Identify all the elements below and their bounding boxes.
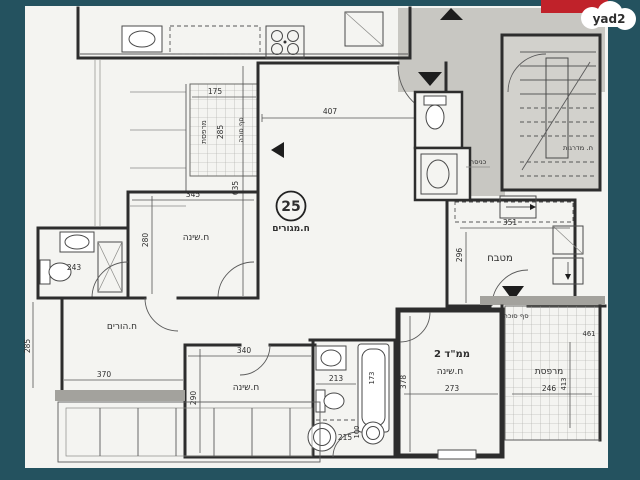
living-label: ח.מגורים	[272, 224, 310, 234]
floorplan-drawing: 175 מרפסת 285 סף סוכה 407 635 25 ח.מגורי…	[0, 0, 640, 480]
kitchen-height: 296	[455, 248, 464, 263]
balcony-bottom-edge-dim: 461	[583, 330, 596, 338]
toilet-icon	[424, 96, 446, 129]
bedroom-2-label: ח.שינה	[233, 383, 260, 393]
sink-icon	[316, 346, 346, 370]
kitchen-width: 351	[503, 218, 518, 227]
balcony-bottom-label: מרפסת	[535, 367, 564, 377]
balcony-bottom-width: 246	[542, 384, 557, 393]
balcony-bottom-height: 413	[560, 378, 568, 391]
bathroom-2-dim-c: 100	[353, 426, 361, 439]
bedroom-2-height: 290	[189, 391, 198, 406]
mamad-label: ממ"ד 2	[434, 349, 470, 360]
bedroom-1-width: 345	[186, 190, 201, 199]
balcony-bottom-sill-label: סף סוכה	[503, 312, 529, 320]
bedroom-1-height: 280	[141, 233, 150, 248]
mamad-width: 273	[445, 384, 460, 393]
yad2-logo-text: yad2	[593, 12, 626, 26]
bathtub-icon	[358, 344, 389, 432]
floorplan-photo-viewer: 175 מרפסת 285 סף סוכה 407 635 25 ח.מגורי…	[0, 0, 640, 480]
parents-width: 370	[97, 370, 112, 379]
bedroom-2-width: 340	[237, 346, 252, 355]
unit-number: 25	[281, 199, 300, 215]
balcony-top-sill-label: סף סוכה	[237, 117, 245, 143]
sink-icon	[60, 232, 94, 252]
bedroom-1-label: ח.שינה	[183, 233, 210, 243]
mamad-sublabel: ח.שינה	[437, 367, 464, 377]
bathroom-2-dim-b: 215	[338, 433, 353, 442]
living-width: 407	[323, 107, 338, 116]
parents-label: ח.הורים	[107, 322, 137, 332]
wall-hatch	[480, 296, 605, 305]
entrance-label: כניסה	[470, 158, 487, 166]
balcony-top-height: 285	[216, 125, 225, 140]
bathroom-2-dim-a: 213	[329, 374, 344, 383]
bathtub-dim: 173	[368, 372, 376, 385]
entry-wc	[415, 92, 470, 200]
balcony-top-width: 175	[208, 87, 223, 96]
stairs-label: ח. מדרגות	[563, 144, 593, 152]
balcony-top-label: מרפסת	[199, 120, 208, 144]
mamad-window	[438, 450, 476, 459]
balcony-top: 175 מרפסת 285 סף סוכה	[186, 84, 258, 192]
mamad-height: 378	[399, 375, 408, 390]
bathroom-1-dim: 243	[67, 263, 82, 272]
kitchen-label: מטבח	[487, 253, 513, 264]
parents-height: 285	[23, 339, 32, 354]
wall-hatch	[55, 390, 185, 401]
